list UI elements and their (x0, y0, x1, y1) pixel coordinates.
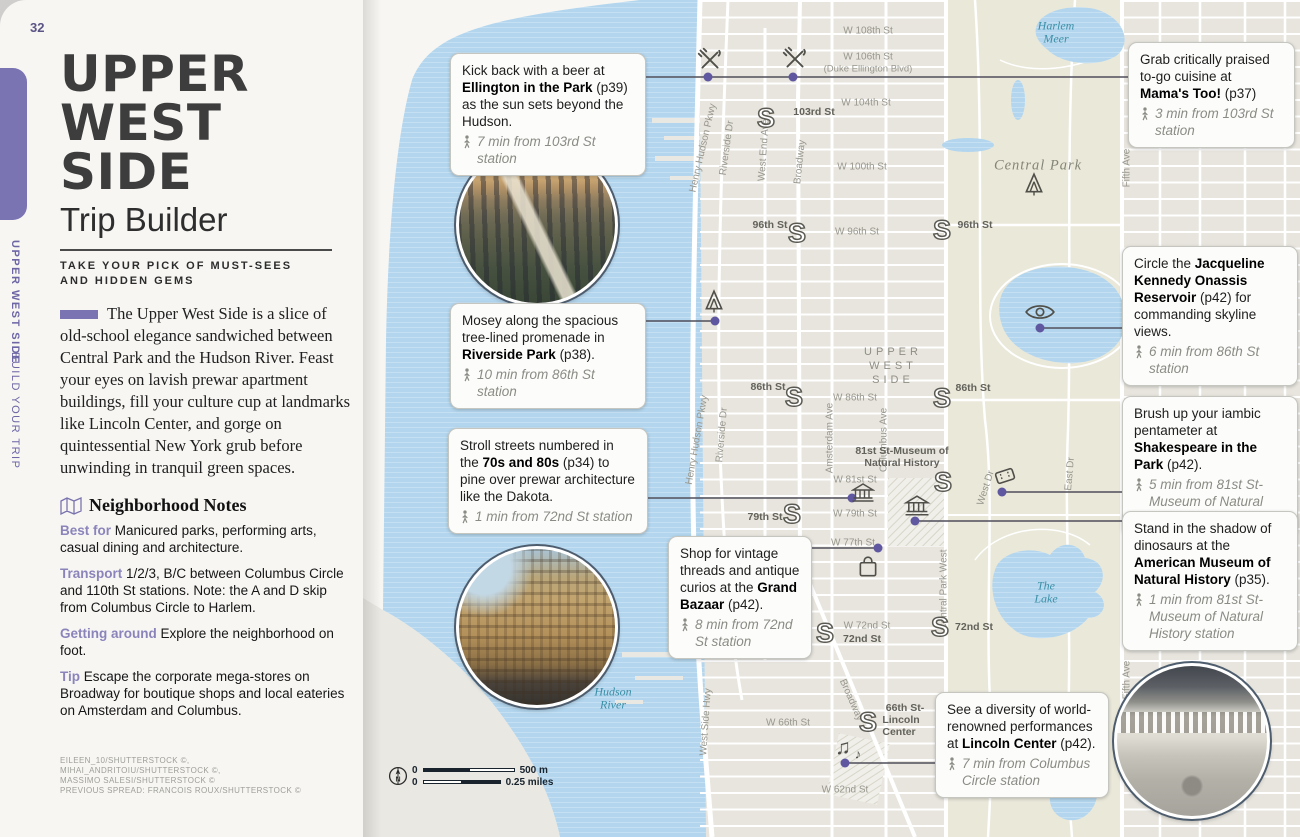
callout-jko-reservoir: Circle the Jacqueline Kennedy Onassis Re… (1122, 246, 1298, 386)
svg-text:S: S (859, 707, 877, 737)
station-label: 96th St (957, 219, 992, 231)
station-label: 86th St (955, 382, 990, 394)
music-note-icon: ♪ (855, 747, 862, 762)
restaurant-icon (782, 46, 808, 72)
page-number: 32 (30, 20, 44, 35)
lead-dash (60, 310, 98, 319)
water-label-the-lake: Lake (1034, 593, 1057, 606)
station-label: Center (882, 726, 915, 738)
note-text: Escape the corporate mega-stores on Broa… (60, 669, 344, 718)
water-label-hudson: River (600, 699, 626, 712)
subway-icon: S (854, 706, 882, 738)
notes-heading-text: Neighborhood Notes (89, 495, 247, 516)
callout-natural-history-museum: Stand in the shadow of dinosaurs at the … (1122, 511, 1298, 651)
station-label: W 72nd St (844, 621, 891, 632)
water-label-harlem-meer: Meer (1043, 33, 1068, 46)
scale-bar-miles (423, 780, 501, 784)
svg-text:S: S (785, 382, 803, 412)
walking-icon (462, 135, 472, 150)
photo-image (459, 549, 615, 705)
street-label: W 62nd St (822, 785, 869, 796)
street-label: (Duke Ellington Blvd) (824, 64, 913, 75)
station-label: 86th St (750, 381, 785, 393)
station-label: 96th St (752, 219, 787, 231)
scale-bar-metric (423, 768, 515, 772)
area-label-uws: UPPER (864, 346, 922, 358)
walk-time: 6 min from 86th St station (1149, 343, 1286, 377)
svg-text:S: S (931, 612, 949, 642)
photo-credits: EILEEN_10/SHUTTERSTOCK ©, MIHAI_ANDRITOI… (60, 756, 320, 796)
title-line-2: WEST (60, 99, 353, 148)
walking-icon (1134, 478, 1144, 493)
street-label: W 86th St (833, 393, 877, 404)
neighborhood-notes-heading: Neighborhood Notes (60, 495, 353, 516)
walk-time: 7 min from Columbus Circle station (962, 755, 1097, 789)
walk-time: 1 min from 72nd St station (475, 508, 633, 525)
walking-icon (460, 510, 470, 525)
chapter-tab (0, 68, 27, 220)
intro-text: The Upper West Side is a slice of old-sc… (60, 304, 350, 477)
street-label: W 106th St (843, 52, 892, 63)
folded-map-icon (60, 497, 82, 515)
kicker-line-2: AND HIDDEN GEMS (60, 274, 340, 289)
theater-ticket-icon (992, 465, 1018, 487)
note-transport: Transport 1/2/3, B/C between Columbus Ci… (60, 565, 345, 616)
callout-mamas-too: Grab critically praised to-go cuisine at… (1128, 42, 1295, 148)
station-label: Natural History (864, 457, 939, 469)
note-best-for: Best for Manicured parks, performing art… (60, 522, 345, 556)
guidebook-spread: 32 UPPER WEST SIDE BUILD YOUR TRIP UPPER… (0, 0, 1300, 837)
scale-zero: 0 (412, 765, 418, 776)
street-label: W 100th St (837, 162, 886, 173)
scale-zero: 0 (412, 777, 418, 788)
photo-image (1117, 666, 1267, 816)
chapter-section-label: BUILD YOUR TRIP (9, 352, 21, 469)
svg-text:S: S (783, 499, 801, 529)
station-label: 66th St- (886, 702, 925, 714)
scale-bar: 0 500 m 0 0.25 miles (412, 764, 553, 788)
kicker: TAKE YOUR PICK OF MUST-SEES AND HIDDEN G… (60, 259, 340, 289)
svg-text:S: S (934, 467, 952, 497)
callout-riverside-park: Mosey along the spacious tree-lined prom… (450, 303, 646, 409)
kicker-line-1: TAKE YOUR PICK OF MUST-SEES (60, 259, 340, 274)
station-label: 72nd St (843, 633, 881, 645)
station-label: 79th St (747, 511, 782, 523)
street-label: W 96th St (835, 227, 879, 238)
walk-time: 3 min from 103rd St station (1155, 105, 1283, 139)
callout-lincoln-center: See a diversity of world-renowned perfor… (935, 692, 1109, 798)
callout-ellington-in-the-park: Kick back with a beer at Ellington in th… (450, 53, 646, 176)
walking-icon (1140, 107, 1150, 122)
subway-icon: S (752, 102, 780, 134)
street-label: W 79th St (833, 509, 877, 520)
area-label-uws: WEST (869, 360, 917, 372)
subway-icon: S (811, 617, 839, 649)
street-label: W 77th St (831, 538, 875, 549)
page-subtitle: Trip Builder (60, 201, 353, 239)
note-label: Transport (60, 566, 122, 581)
note-tip: Tip Escape the corporate mega-stores on … (60, 668, 345, 719)
callout-grand-bazaar: Shop for vintage threads and antique cur… (668, 536, 812, 659)
walk-time: 1 min from 81st St-Museum of Natural His… (1149, 591, 1286, 642)
note-label: Best for (60, 523, 111, 538)
callout-70s-and-80s: Stroll streets numbered in the 70s and 8… (448, 428, 648, 534)
street-label: W 66th St (766, 718, 810, 729)
title-line-3: SIDE (60, 148, 353, 197)
sidebar-column: UPPER WEST SIDE Trip Builder TAKE YOUR P… (60, 50, 353, 728)
intro-paragraph: The Upper West Side is a slice of old-sc… (60, 303, 353, 479)
subway-icon: S (928, 382, 956, 414)
subway-icon: S (929, 466, 957, 498)
avenue-label: Fifth Ave (1122, 149, 1133, 188)
music-note-icon: ♫ (835, 736, 851, 760)
shopping-bag-icon (857, 555, 879, 579)
walking-icon (1134, 593, 1144, 608)
park-tree-icon (703, 289, 725, 313)
svg-text:S: S (933, 215, 951, 245)
svg-text:S: S (933, 383, 951, 413)
note-label: Getting around (60, 626, 157, 641)
note-getting-around: Getting around Explore the neighborhood … (60, 625, 345, 659)
walking-icon (462, 368, 472, 383)
avenue-label: Amsterdam Ave (825, 403, 836, 473)
subway-icon: S (926, 611, 954, 643)
scale-miles-label: 0.25 miles (506, 777, 554, 788)
walk-time: 10 min from 86th St station (477, 366, 634, 400)
station-label: 81st St-Museum of (855, 445, 948, 457)
svg-text:N: N (395, 777, 400, 784)
credit-line: PREVIOUS SPREAD: FRANCOIS ROUX/SHUTTERST… (60, 786, 320, 796)
walking-icon (680, 618, 690, 633)
park-tree-icon (1023, 172, 1045, 196)
page-title: UPPER WEST SIDE (60, 50, 353, 197)
note-label: Tip (60, 669, 80, 684)
walking-icon (1134, 345, 1144, 360)
museum-icon (851, 482, 875, 504)
credit-line: MASSIMO SALESI/SHUTTERSTOCK © (60, 776, 320, 786)
photo-dakota-building (456, 546, 618, 708)
title-line-1: UPPER (60, 50, 353, 99)
viewpoint-eye-icon (1025, 303, 1055, 322)
station-label: Lincoln (882, 714, 919, 726)
street-label: W 104th St (841, 98, 890, 109)
museum-icon (904, 494, 931, 518)
scale-metric-label: 500 m (520, 765, 548, 776)
walking-icon (947, 757, 957, 772)
restaurant-icon (697, 47, 723, 73)
svg-text:S: S (757, 103, 775, 133)
svg-text:S: S (788, 218, 806, 248)
street-label: W 108th St (843, 26, 892, 37)
station-label: 72nd St (955, 621, 993, 633)
north-compass-icon: N (388, 766, 408, 786)
photo-lincoln-center (1114, 663, 1270, 819)
area-label-uws: SIDE (872, 374, 914, 386)
chapter-tab-label: UPPER WEST SIDE (9, 240, 21, 364)
divider (60, 249, 332, 251)
station-label: 103rd St (793, 106, 834, 118)
walk-time: 7 min from 103rd St station (477, 133, 634, 167)
walk-time: 8 min from 72nd St station (695, 616, 800, 650)
svg-text:S: S (816, 618, 834, 648)
subway-icon: S (928, 214, 956, 246)
credit-line: EILEEN_10/SHUTTERSTOCK ©, MIHAI_ANDRITOI… (60, 756, 320, 776)
